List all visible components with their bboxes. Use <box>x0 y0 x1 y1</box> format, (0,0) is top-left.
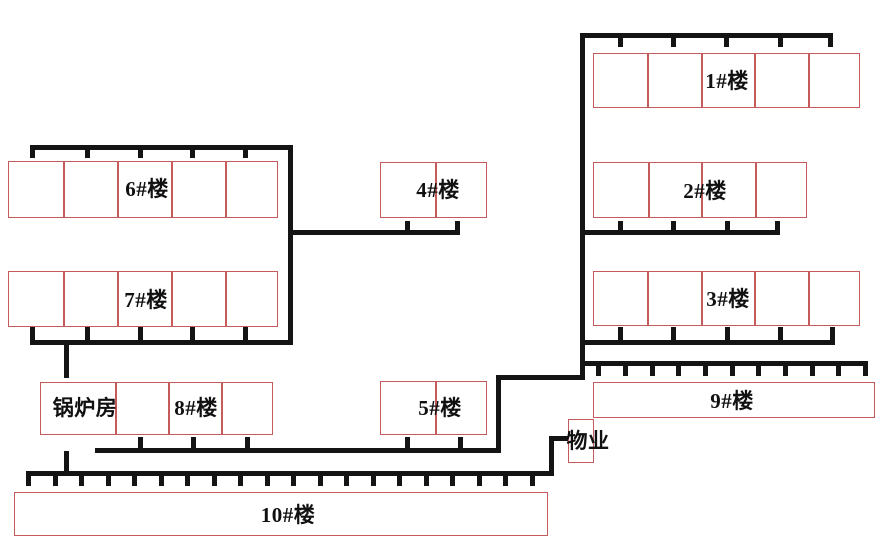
pipe-segment <box>477 476 482 486</box>
pipe-segment <box>371 476 376 486</box>
unit-divider <box>63 162 65 217</box>
pipe-segment <box>243 327 248 340</box>
pipe-segment <box>106 476 111 486</box>
pipe-segment <box>159 476 164 486</box>
pipe-segment <box>344 476 349 486</box>
unit-divider <box>808 272 810 325</box>
pipe-segment <box>138 437 143 448</box>
pipe-segment <box>265 476 270 486</box>
unit-divider <box>225 162 227 217</box>
pipe-segment <box>756 366 761 376</box>
pipe-segment <box>405 221 410 230</box>
unit-divider <box>648 163 650 217</box>
pipe-segment <box>85 150 90 158</box>
pipe-segment <box>95 448 501 453</box>
pipe-segment <box>85 327 90 340</box>
unit-divider <box>117 272 119 326</box>
building-5-label: 5#楼 <box>418 392 462 422</box>
unit-divider <box>168 383 170 434</box>
pipe-segment <box>26 476 31 486</box>
pipe-segment <box>496 375 585 380</box>
pipe-segment <box>580 230 780 235</box>
pipe-segment <box>530 476 535 486</box>
pipe-segment <box>725 221 730 230</box>
pipe-segment <box>496 375 501 452</box>
pipe-segment <box>138 327 143 340</box>
unit-divider <box>63 272 65 326</box>
pipe-segment <box>618 221 623 230</box>
site-plan: 6#楼7#楼4#楼5#楼1#楼2#楼3#楼9#楼锅炉房8#楼物业10#楼 <box>0 0 884 543</box>
pipe-segment <box>503 476 508 486</box>
pipe-segment <box>30 145 293 150</box>
pipe-segment <box>549 436 554 476</box>
pipe-segment <box>30 327 35 340</box>
pipe-segment <box>30 340 293 345</box>
pipe-segment <box>650 366 655 376</box>
pipe-segment <box>424 476 429 486</box>
building-9-label: 9#楼 <box>710 385 754 415</box>
unit-divider <box>754 54 756 107</box>
pipe-segment <box>238 476 243 486</box>
pipe-segment <box>190 327 195 340</box>
pipe-segment <box>676 366 681 376</box>
pipe-segment <box>53 476 58 486</box>
pipe-segment <box>623 366 628 376</box>
pipe-segment <box>138 150 143 158</box>
unit-divider <box>701 272 703 325</box>
building-wuye-label: 物业 <box>567 425 610 455</box>
unit-divider <box>755 163 757 217</box>
pipe-segment <box>618 327 623 340</box>
building-6-label: 6#楼 <box>125 173 169 203</box>
building-4-label: 4#楼 <box>416 174 460 204</box>
pipe-segment <box>671 38 676 47</box>
unit-divider <box>171 162 173 217</box>
pipe-segment <box>730 366 735 376</box>
pipe-segment <box>132 476 137 486</box>
pipe-segment <box>580 340 835 345</box>
pipe-segment <box>863 366 868 376</box>
pipe-segment <box>405 437 410 448</box>
pipe-segment <box>288 230 460 235</box>
unit-divider <box>701 54 703 107</box>
pipe-segment <box>810 366 815 376</box>
unit-divider <box>754 272 756 325</box>
pipe-segment <box>450 476 455 486</box>
pipe-segment <box>778 327 783 340</box>
building-2-label: 2#楼 <box>683 175 727 205</box>
building-1-label: 1#楼 <box>705 65 749 95</box>
pipe-segment <box>397 476 402 486</box>
unit-divider <box>647 272 649 325</box>
unit-divider <box>171 272 173 326</box>
pipe-segment <box>724 38 729 47</box>
pipe-segment <box>245 437 250 448</box>
pipe-segment <box>828 38 833 47</box>
unit-divider <box>117 162 119 217</box>
pipe-segment <box>671 221 676 230</box>
pipe-segment <box>618 38 623 47</box>
pipe-segment <box>596 366 601 376</box>
pipe-segment <box>783 366 788 376</box>
pipe-segment <box>243 150 248 158</box>
building-boiler-8-label: 8#楼 <box>174 392 218 422</box>
unit-divider <box>221 383 223 434</box>
pipe-segment <box>288 145 293 345</box>
unit-divider <box>225 272 227 326</box>
pipe-segment <box>30 150 35 158</box>
pipe-segment <box>703 366 708 376</box>
pipe-segment <box>580 33 585 380</box>
pipe-segment <box>778 38 783 47</box>
pipe-segment <box>458 437 463 448</box>
pipe-segment <box>455 221 460 235</box>
pipe-segment <box>725 327 730 340</box>
pipe-segment <box>191 437 196 448</box>
unit-divider <box>808 54 810 107</box>
pipe-segment <box>775 221 780 235</box>
pipe-segment <box>318 476 323 486</box>
building-3-label: 3#楼 <box>706 283 750 313</box>
pipe-segment <box>190 150 195 158</box>
pipe-segment <box>291 476 296 486</box>
pipe-segment <box>185 476 190 486</box>
building-7-label: 7#楼 <box>124 284 168 314</box>
pipe-segment <box>836 366 841 376</box>
pipe-segment <box>830 327 835 345</box>
pipe-segment <box>64 345 69 378</box>
pipe-segment <box>212 476 217 486</box>
unit-divider <box>647 54 649 107</box>
building-boiler-8-label: 锅炉房 <box>53 392 118 422</box>
pipe-segment <box>79 476 84 486</box>
building-10-label: 10#楼 <box>261 499 316 529</box>
pipe-segment <box>671 327 676 340</box>
